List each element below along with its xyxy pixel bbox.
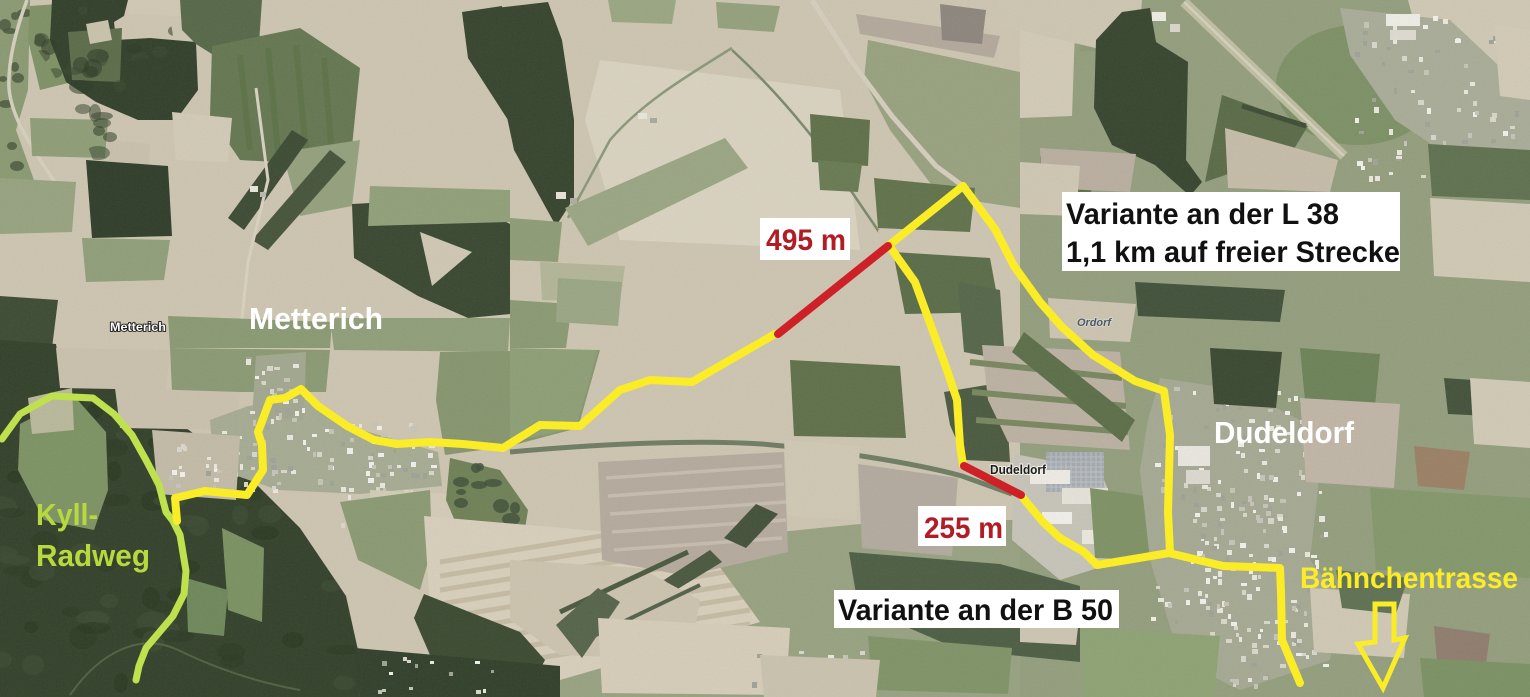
svg-text:Radweg: Radweg (36, 538, 150, 573)
svg-text:Kyll-: Kyll- (36, 497, 98, 532)
svg-text:Variante an der B 50: Variante an der B 50 (838, 594, 1113, 627)
svg-text:Metterich: Metterich (249, 301, 383, 336)
svg-text:Dudeldorf: Dudeldorf (1214, 415, 1355, 450)
svg-text:Bähnchentrasse: Bähnchentrasse (1300, 562, 1518, 595)
svg-text:Variante an der L 38: Variante an der L 38 (1066, 198, 1339, 231)
svg-text:1,1 km auf freier Strecke: 1,1 km auf freier Strecke (1066, 236, 1400, 269)
svg-text:Ordorf: Ordorf (1077, 317, 1112, 329)
svg-text:255 m: 255 m (924, 512, 1003, 545)
svg-text:Metterich: Metterich (110, 320, 166, 334)
svg-text:Dudeldorf: Dudeldorf (990, 462, 1047, 477)
svg-text:495 m: 495 m (766, 224, 846, 257)
